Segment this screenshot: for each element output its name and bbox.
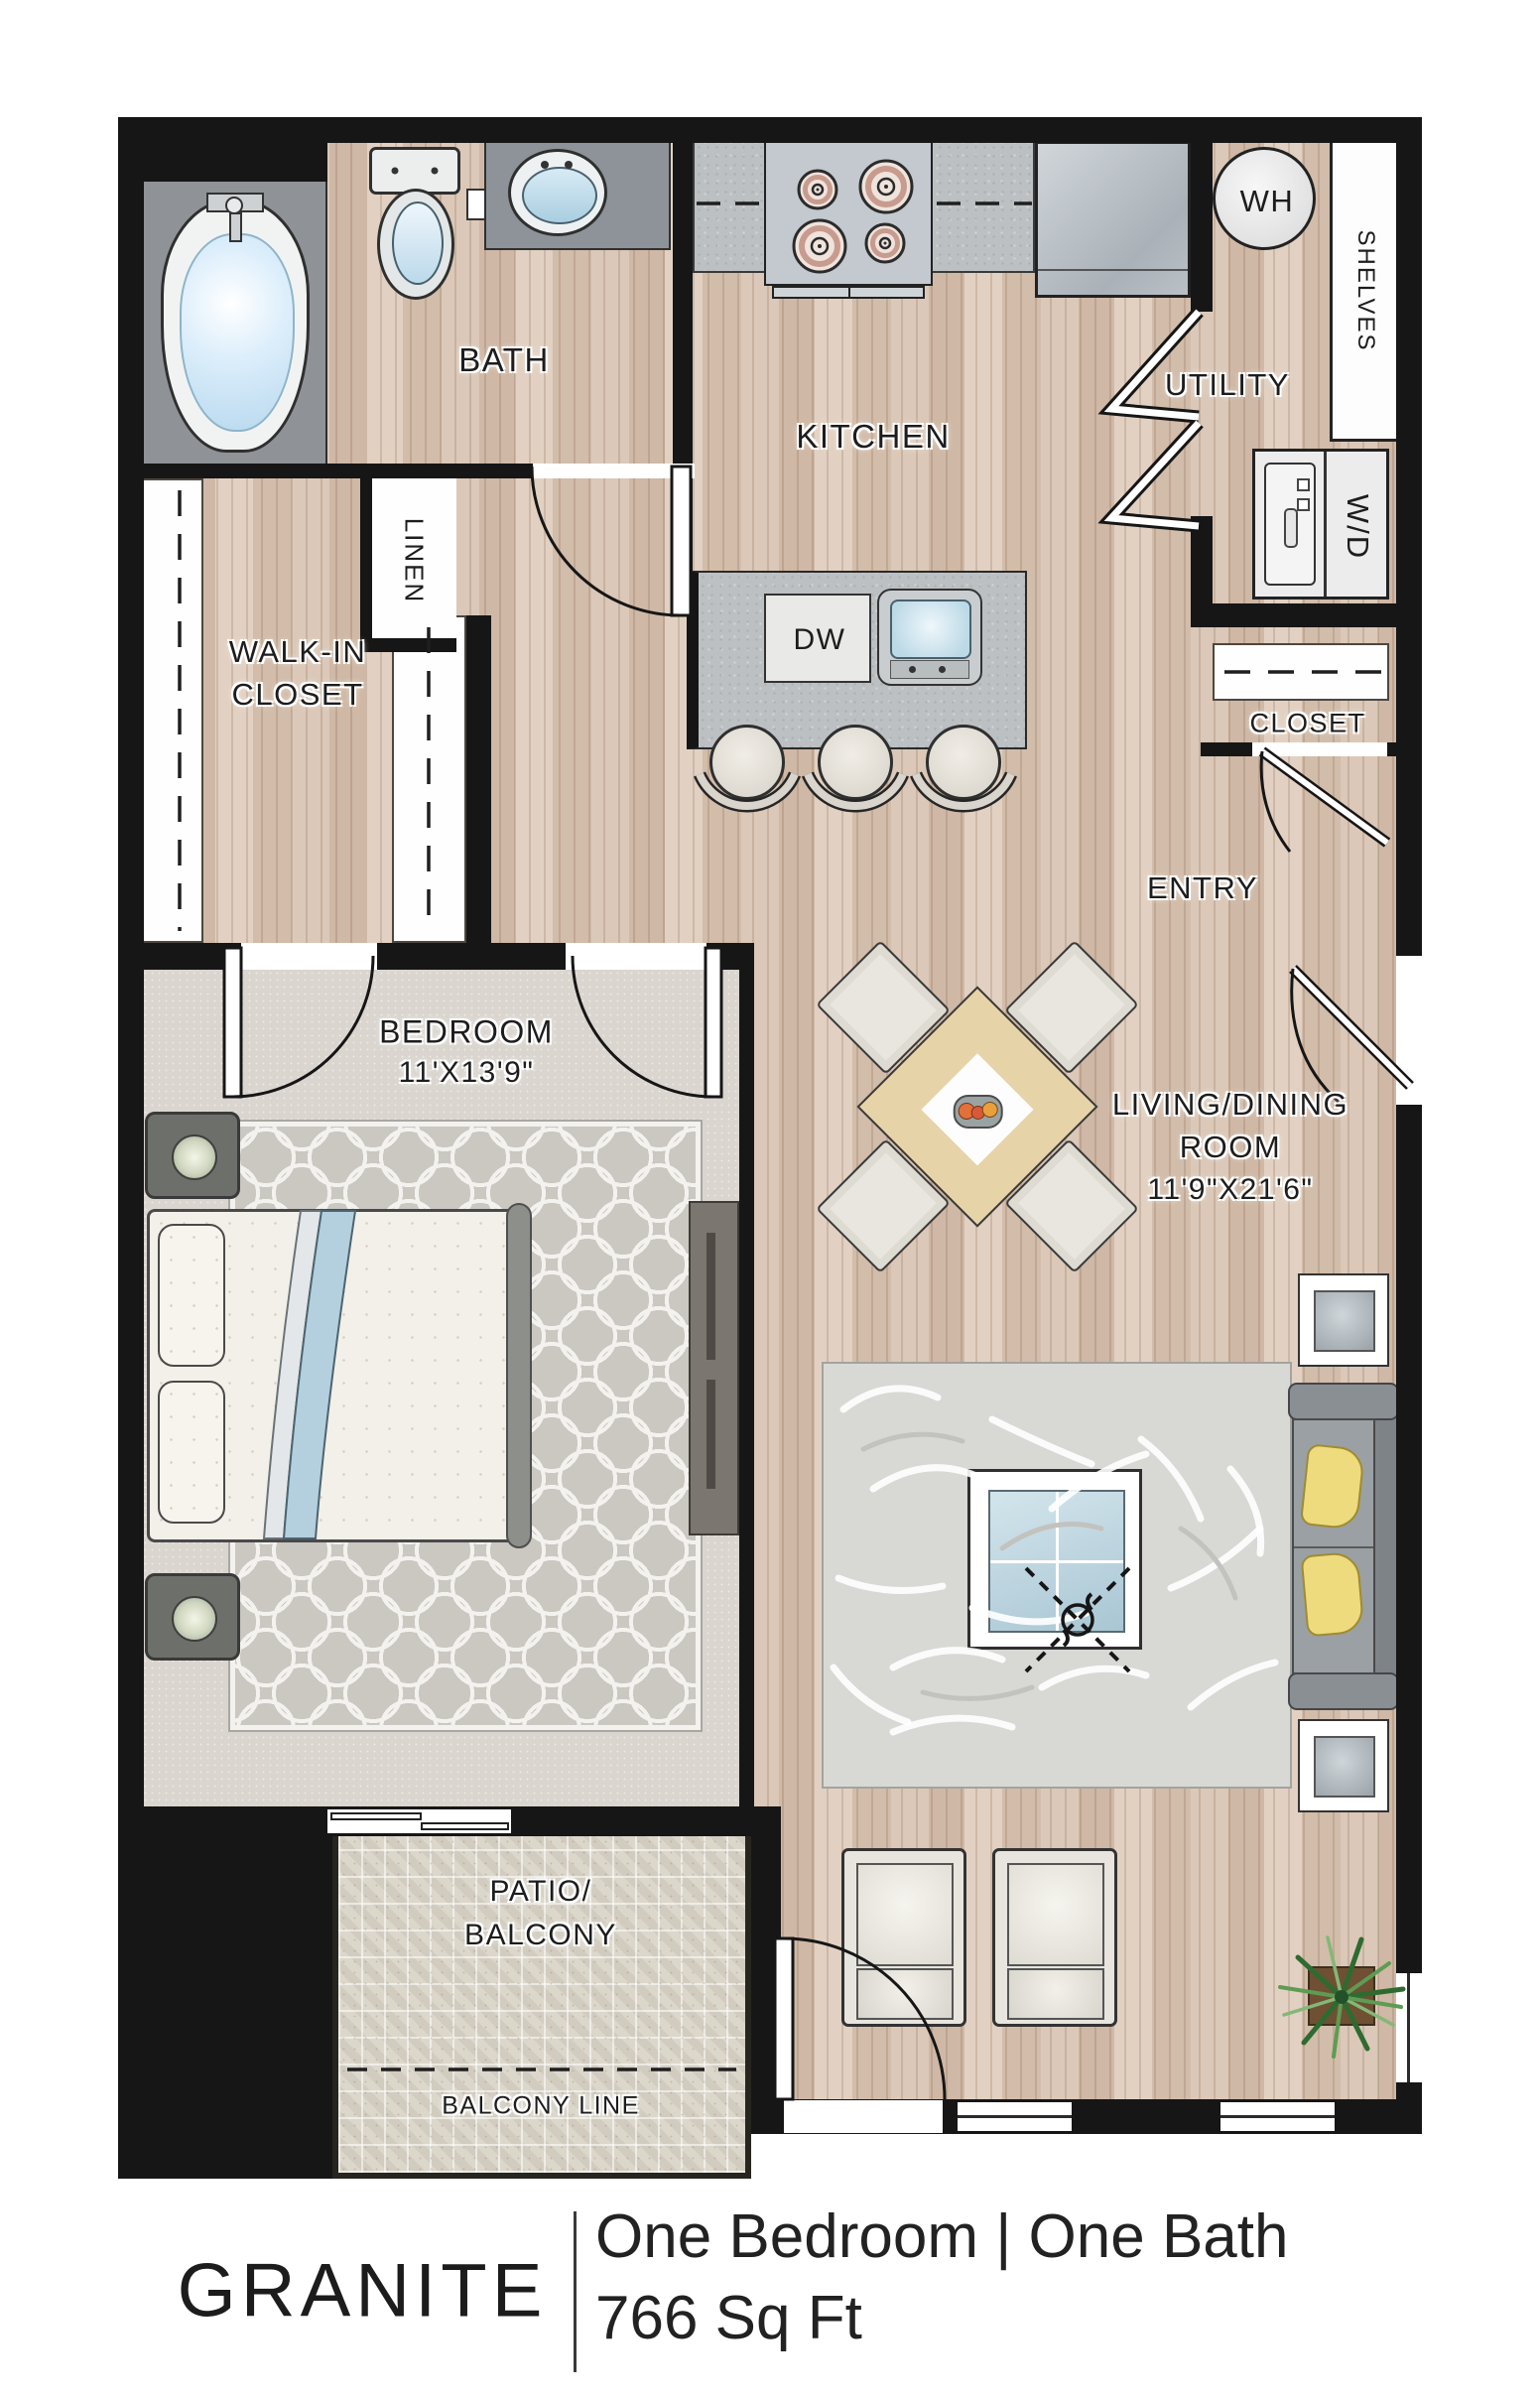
window-living-2 <box>1220 2102 1335 2131</box>
stove <box>764 141 933 286</box>
accent-chair-1 <box>841 1848 966 2027</box>
label-living-dim: 11'9"X21'6" <box>1147 1173 1313 1207</box>
bathtub-water <box>180 233 295 432</box>
washer-knob <box>1297 478 1310 491</box>
lamp-top <box>172 1134 217 1180</box>
label-patio-1: PATIO/ <box>490 1875 592 1909</box>
end-table-top <box>1298 1273 1389 1367</box>
wall-top <box>118 117 1420 143</box>
accent-chair-1-seat <box>856 1863 954 1966</box>
washer-dryer-label: W/D <box>1340 494 1375 560</box>
lamp-bottom <box>172 1596 217 1642</box>
fridge-door-split <box>1038 269 1188 271</box>
toilet-tank <box>369 147 460 195</box>
bed-pillow-2 <box>158 1381 225 1524</box>
island-sink-basin <box>890 600 971 659</box>
window-living-1 <box>958 2102 1072 2131</box>
wall-mass-bottom-left <box>118 1836 332 2179</box>
sofa-pillow-2 <box>1301 1551 1365 1638</box>
slider-panel-2 <box>421 1822 509 1830</box>
sink-knob-1 <box>909 666 916 673</box>
nightstand-top <box>145 1112 240 1199</box>
footer-spec: One Bedroom | One Bath <box>595 2201 1289 2272</box>
wall-tub-alcove <box>142 141 327 182</box>
end-table-bottom <box>1298 1719 1389 1812</box>
window-right-line <box>1407 1973 1410 2082</box>
opening-entry-door <box>1396 956 1422 1105</box>
utility-shelves: SHELVES <box>1330 141 1396 442</box>
dishwasher-label: DW <box>794 623 846 657</box>
stove-front-divider <box>848 288 850 297</box>
bar-stool-3 <box>926 725 1001 800</box>
label-entry: ENTRY <box>1147 870 1258 906</box>
wall-left <box>118 117 144 1836</box>
footer-plan-name: GRANITE <box>178 2248 548 2334</box>
tub-spout <box>229 212 242 242</box>
bath-sink-basin <box>522 167 597 224</box>
fruit-3 <box>982 1102 998 1118</box>
console-slot-2 <box>706 1380 715 1489</box>
label-utility: UTILITY <box>1165 367 1290 403</box>
end-table-bottom-lamp <box>1314 1736 1375 1798</box>
island-sink <box>877 589 982 686</box>
washer-icon <box>1264 463 1316 586</box>
stove-front <box>772 286 925 299</box>
water-heater-label: WH <box>1240 184 1295 219</box>
opening-closet-door <box>1252 742 1387 756</box>
toilet-bowl <box>377 189 454 300</box>
label-linen: LINEN <box>399 518 430 604</box>
walkin-shelf-left <box>142 478 203 943</box>
bedroom-patio-slider <box>327 1809 511 1833</box>
wall-bath-kitchen <box>673 141 693 571</box>
label-entry-closet: CLOSET <box>1249 709 1365 739</box>
bed-footboard <box>506 1203 532 1548</box>
bar-stool-1 <box>709 725 785 800</box>
label-bedroom: BEDROOM <box>379 1014 554 1051</box>
wall-step <box>751 1836 781 2099</box>
toilet-bowl-inner <box>392 201 444 285</box>
opening-bath-door <box>533 464 695 478</box>
island-sink-panel <box>890 660 969 679</box>
label-walkin-2: CLOSET <box>231 677 363 713</box>
label-living-1: LIVING/DINING <box>1112 1087 1348 1123</box>
wall-utility-left-b <box>1191 516 1213 603</box>
fruit-plate <box>954 1095 1003 1129</box>
sofa-cushion-split <box>1294 1546 1373 1548</box>
opening-hall-door <box>566 943 706 970</box>
fridge <box>1035 141 1191 298</box>
shelves-label: SHELVES <box>1351 230 1379 352</box>
wall-walkin-right <box>466 615 491 943</box>
console-slot-1 <box>706 1233 715 1360</box>
label-bath: BATH <box>458 341 550 379</box>
label-living-2: ROOM <box>1180 1130 1281 1165</box>
label-balcony-line: BALCONY LINE <box>442 2092 640 2121</box>
label-patio-2: BALCONY <box>464 1919 617 1952</box>
wall-right <box>1396 117 1422 2134</box>
wall-utility-bottom <box>1191 603 1396 627</box>
nightstand-bottom <box>145 1573 240 1661</box>
accent-chair-2-back <box>1007 1968 1104 2020</box>
wall-bedroom-right <box>739 943 754 1806</box>
entry-closet-shelf <box>1213 643 1389 701</box>
bath-sink <box>508 149 607 236</box>
window-living-1-line <box>958 2115 1072 2118</box>
accent-chair-2-seat <box>1007 1863 1104 1966</box>
bedroom-media-console <box>689 1201 739 1535</box>
label-bedroom-dim: 11'X13'9" <box>399 1056 535 1090</box>
opening-patio-door <box>784 2100 943 2133</box>
end-table-top-lamp <box>1314 1290 1375 1352</box>
sofa-arm-bottom <box>1288 1672 1399 1710</box>
sink-knob-2 <box>939 666 946 673</box>
water-heater: WH <box>1213 147 1316 250</box>
window-living-2-line <box>1220 2115 1335 2118</box>
accent-chair-1-back <box>856 1968 954 2020</box>
opening-bedroom-door <box>241 943 377 970</box>
wall-linen-left <box>360 478 372 652</box>
wall-linen-bottom <box>360 638 456 652</box>
washer-dryer: W/D <box>1252 449 1389 600</box>
washer-handle <box>1284 508 1298 548</box>
label-walkin-1: WALK-IN <box>229 634 367 670</box>
table-runner <box>921 1053 1033 1165</box>
sofa <box>1288 1383 1399 1710</box>
walkin-shelf-right <box>392 615 466 943</box>
bed-pillow-1 <box>158 1224 225 1367</box>
wd-divider <box>1324 452 1327 597</box>
coffee-table-glass <box>988 1490 1125 1633</box>
footer-divider <box>574 2211 577 2372</box>
footer-area: 766 Sq Ft <box>595 2283 862 2353</box>
label-kitchen: KITCHEN <box>796 418 950 456</box>
washer-knob2 <box>1297 498 1310 511</box>
bed <box>147 1209 526 1542</box>
wall-utility-left-a <box>1191 141 1213 312</box>
floor-plan-canvas: DW WH SHELVES W/D <box>0 0 1540 2399</box>
coffee-table <box>967 1469 1142 1650</box>
slider-panel-1 <box>330 1812 422 1820</box>
window-right <box>1396 1973 1422 2082</box>
accent-chair-2 <box>992 1848 1117 2027</box>
sofa-arm-top <box>1288 1383 1399 1420</box>
bar-stool-2 <box>818 725 893 800</box>
dishwasher-box: DW <box>764 594 871 683</box>
